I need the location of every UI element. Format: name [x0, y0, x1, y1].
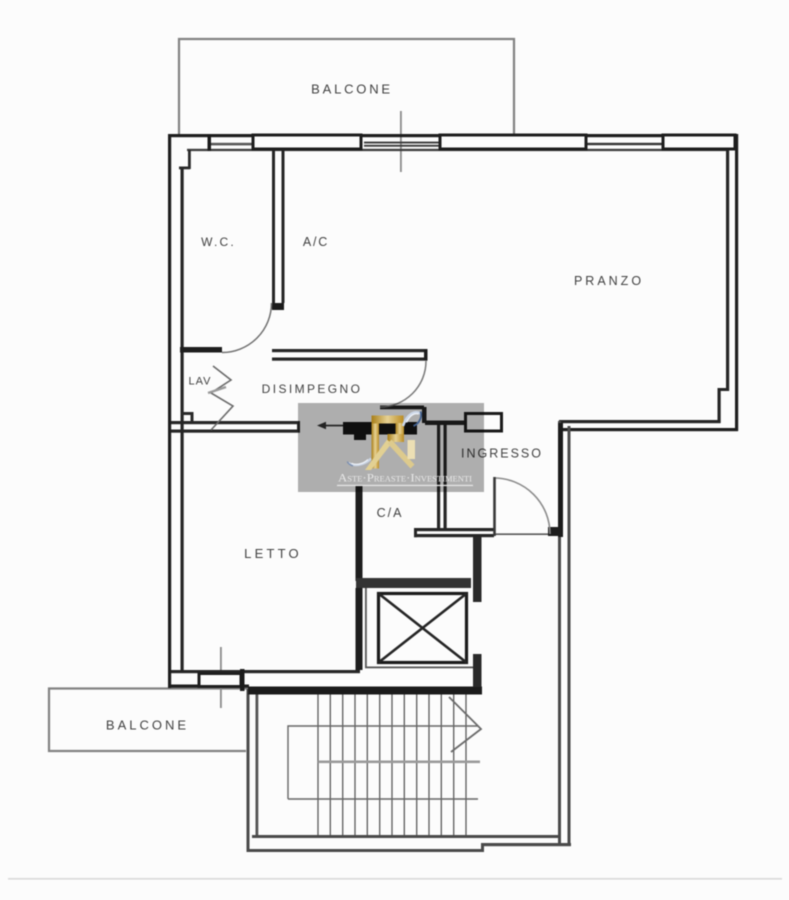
svg-text:PRANZO: PRANZO: [574, 274, 644, 288]
svg-text:C/A: C/A: [377, 506, 404, 520]
svg-text:Aste·Preaste·Investimenti: Aste·Preaste·Investimenti: [338, 471, 472, 485]
svg-text:BALCONE: BALCONE: [106, 718, 189, 733]
svg-text:A/C: A/C: [303, 235, 329, 249]
svg-text:LAV: LAV: [189, 376, 212, 388]
svg-text:LETTO: LETTO: [244, 546, 302, 561]
svg-text:W.C.: W.C.: [201, 235, 236, 249]
svg-text:BALCONE: BALCONE: [311, 82, 393, 97]
svg-text:DISIMPEGNO: DISIMPEGNO: [262, 382, 363, 396]
